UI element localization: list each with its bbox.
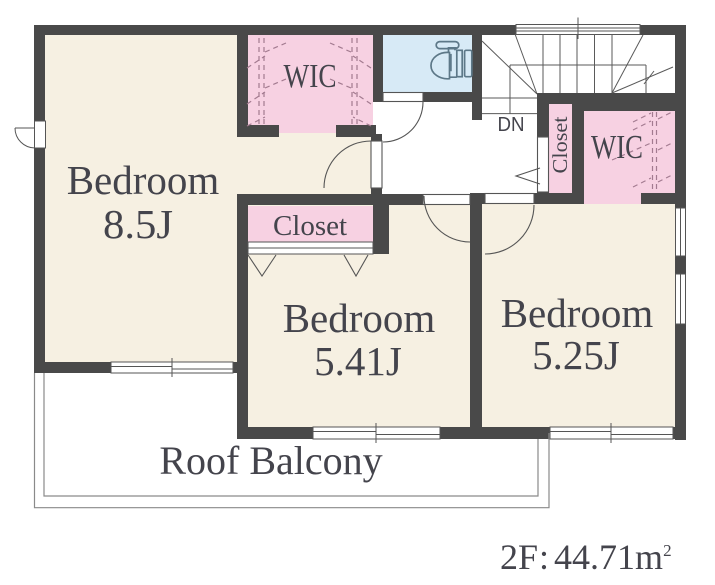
svg-text:5.41J: 5.41J <box>314 338 402 384</box>
svg-text:Roof Balcony: Roof Balcony <box>159 438 382 483</box>
svg-text:Closet: Closet <box>273 210 347 242</box>
svg-text:WIC: WIC <box>284 58 337 95</box>
svg-text:WIC: WIC <box>591 129 643 166</box>
svg-text:Bedroom: Bedroom <box>67 157 220 203</box>
svg-text:5.25J: 5.25J <box>532 332 620 378</box>
svg-text:8.5J: 8.5J <box>103 201 173 247</box>
svg-text:Bedroom: Bedroom <box>501 290 654 336</box>
svg-text:Bedroom: Bedroom <box>283 295 436 341</box>
svg-text:2F:44.71m2: 2F:44.71m2 <box>500 537 672 577</box>
svg-text:DN: DN <box>498 114 525 136</box>
svg-text:Closet: Closet <box>548 116 572 173</box>
